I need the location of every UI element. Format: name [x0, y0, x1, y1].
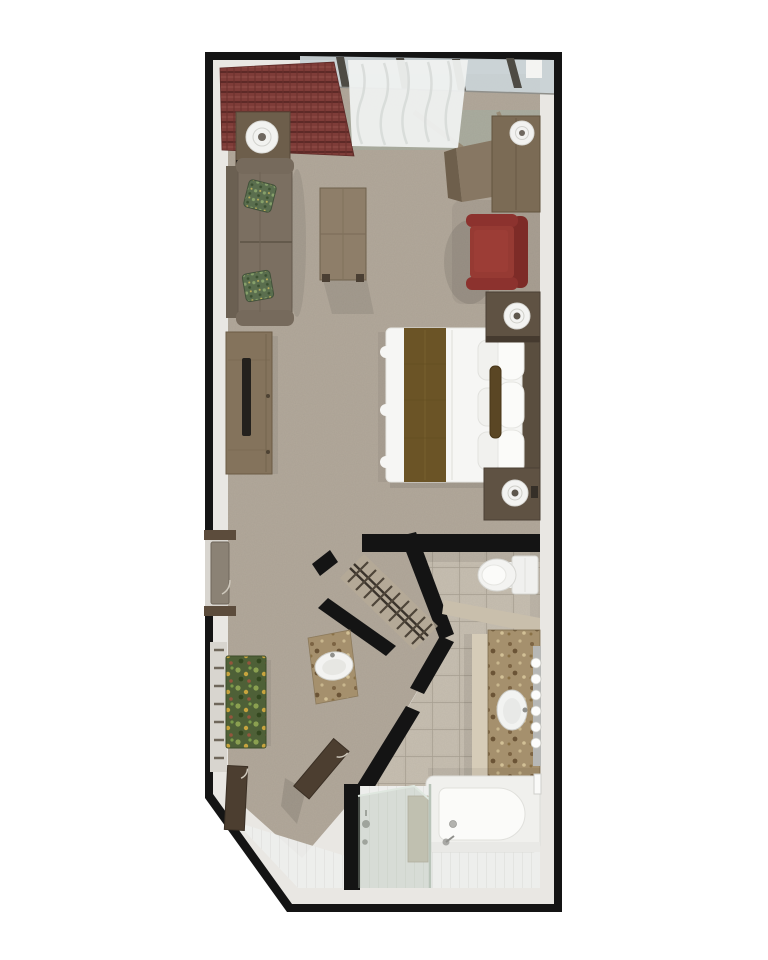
- desk-lamp-icon: [510, 121, 534, 145]
- armchair-arm-bottom: [466, 277, 518, 290]
- glass-shower: [358, 784, 430, 888]
- vanity-shadow: [464, 634, 473, 778]
- granite-vanity: [464, 630, 541, 778]
- entry-door-lintel-top: [204, 530, 236, 540]
- armchair-cushion: [474, 230, 508, 272]
- shower-west-wall: [344, 784, 360, 890]
- media-console: [226, 332, 278, 474]
- table-lamp-icon: [246, 121, 278, 153]
- window-end-panel: [526, 60, 542, 78]
- green-floral-rug: [226, 656, 271, 748]
- toilet: [478, 556, 538, 594]
- coffee-table: [320, 188, 374, 314]
- armchair-back: [512, 216, 528, 288]
- rug-body: [226, 656, 266, 748]
- coffee-table-leg-left: [322, 274, 330, 282]
- shower-glass-panel: [358, 786, 430, 888]
- ladder-backplate: [210, 642, 227, 772]
- console-knob-bottom: [266, 450, 270, 454]
- floor-plan-canvas: [0, 0, 768, 960]
- sheer-curtain: [348, 60, 468, 148]
- sofa-arm-bottom: [236, 310, 294, 326]
- vanity-sink-icon: [497, 690, 528, 730]
- tub-basin: [439, 788, 525, 840]
- towel-bar: [534, 774, 541, 794]
- nightstand-top: [486, 292, 540, 342]
- coffee-table-leg-right: [356, 274, 364, 282]
- towel-ladder: [210, 642, 227, 772]
- tub-drain: [450, 821, 457, 828]
- pillows: [498, 334, 524, 476]
- television-icon: [242, 358, 251, 436]
- armchair-arm-top: [466, 214, 518, 227]
- nightstand-lamp-bottom-icon: [502, 480, 528, 506]
- bathtub: [426, 768, 541, 852]
- console-knob-top: [266, 394, 270, 398]
- bathroom-north-wall: [362, 534, 540, 552]
- entry-door-lintel-bottom: [204, 606, 236, 616]
- accent-pillow-top: [243, 179, 277, 213]
- nightstand-top-edge: [486, 336, 540, 342]
- nightstand-phone: [531, 486, 538, 498]
- sofa: [226, 158, 306, 326]
- vanity-sink-nook: [308, 630, 358, 704]
- bolster-pillow: [490, 366, 501, 438]
- rug-shadow: [266, 660, 271, 746]
- bed: [380, 326, 540, 488]
- tub-shadow: [428, 768, 540, 776]
- nightstand-bottom: [484, 468, 540, 520]
- sofa-arm-top: [236, 158, 294, 174]
- toilet-seat: [482, 565, 506, 585]
- console-shadow: [272, 336, 278, 474]
- floor-plan: [0, 0, 768, 960]
- door-left: [224, 766, 247, 831]
- accent-pillow-bottom: [242, 270, 274, 302]
- entry-door-leaf: [211, 542, 229, 604]
- nightstand-lamp-top-icon: [504, 303, 530, 329]
